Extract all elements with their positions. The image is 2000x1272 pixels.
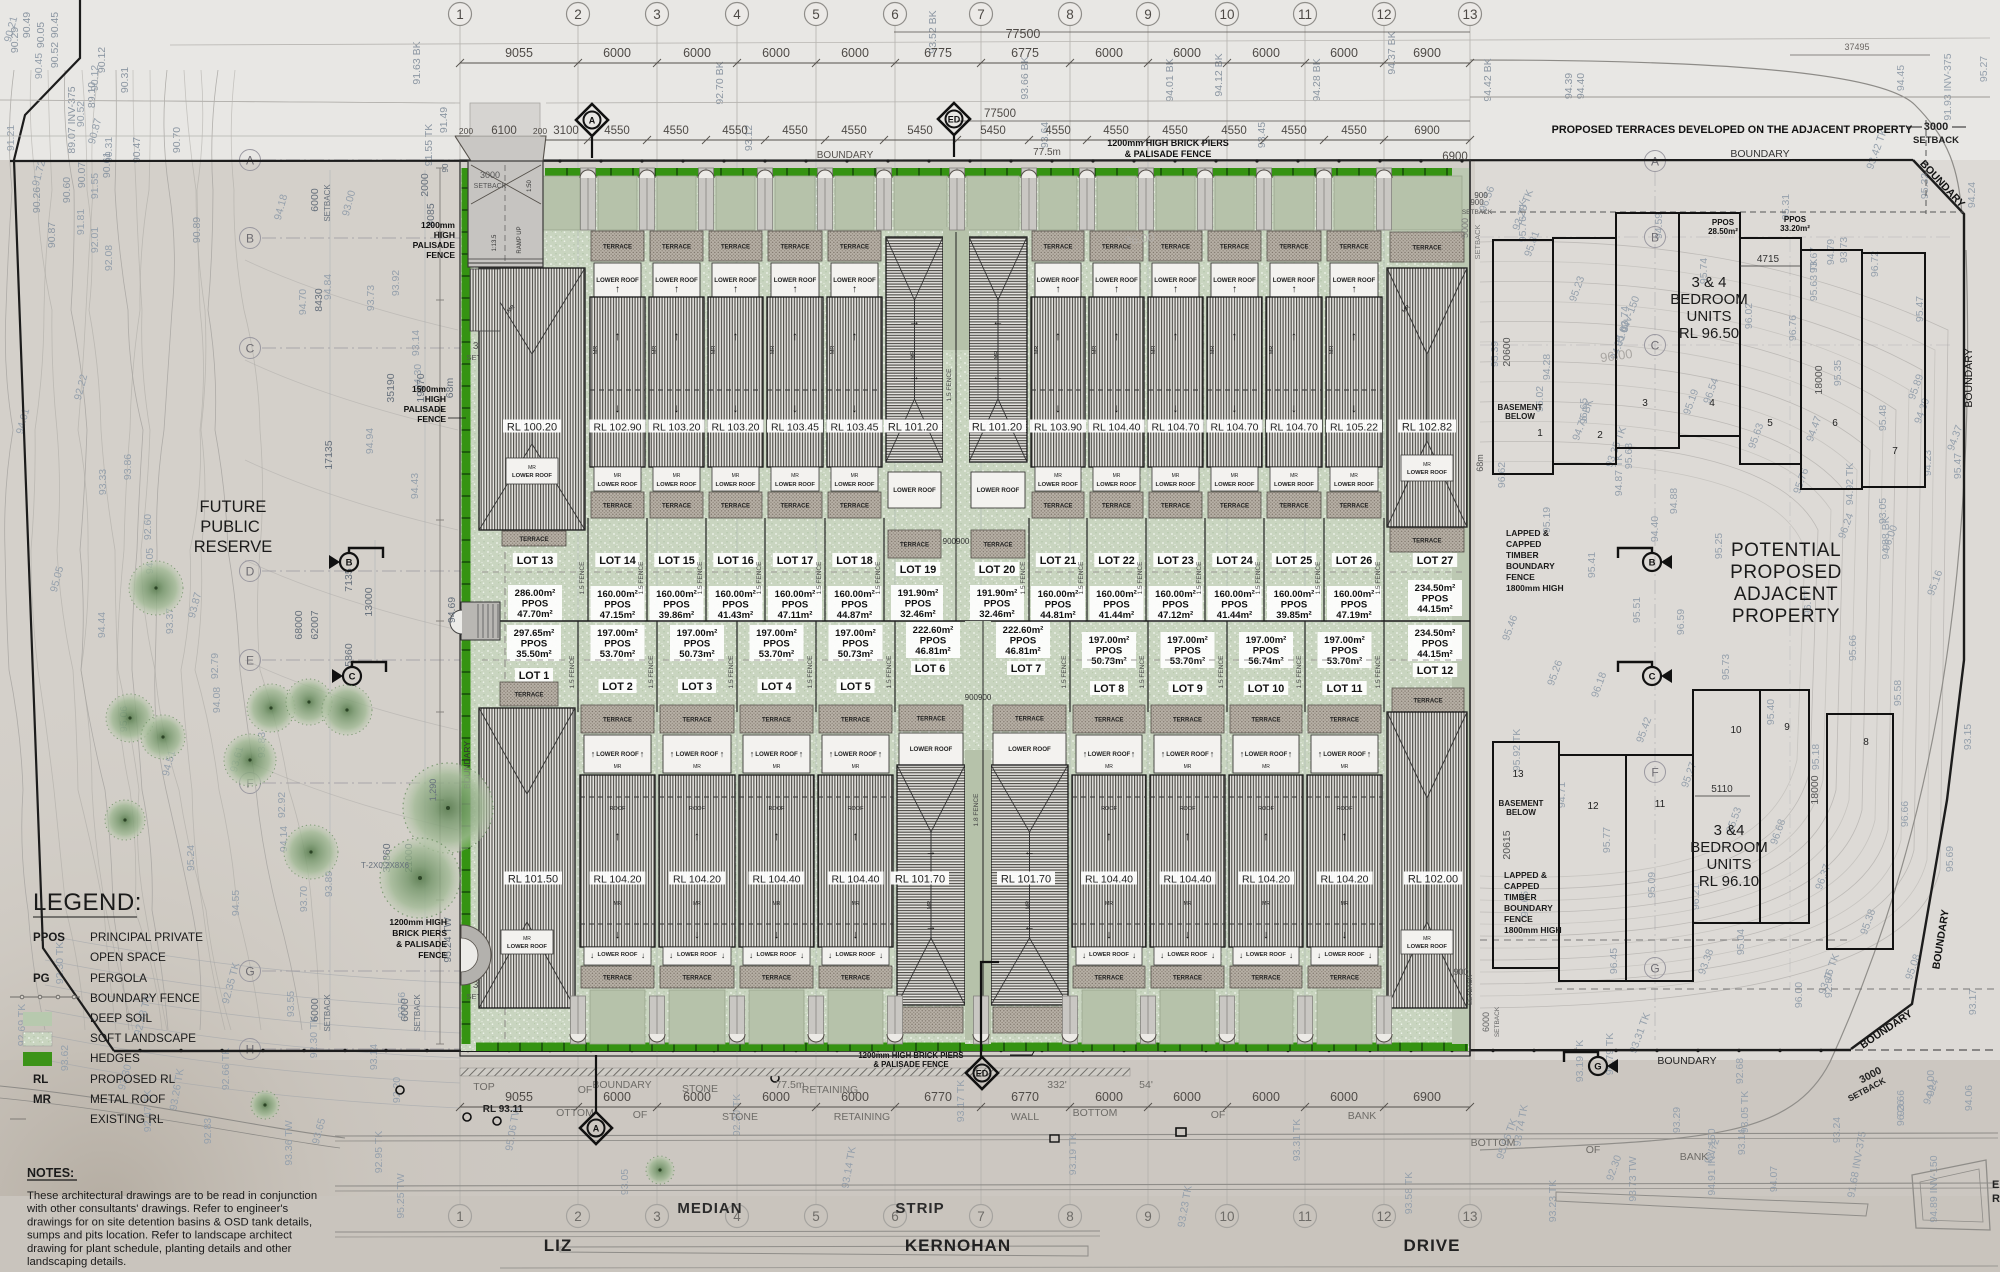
svg-text:1.5 FENCE: 1.5 FENCE [1061, 655, 1068, 689]
svg-text:MR: MR [791, 473, 799, 479]
svg-text:TIMBER: TIMBER [1506, 550, 1539, 560]
svg-text:↑: ↑ [670, 749, 675, 759]
svg-text:D: D [246, 565, 255, 579]
svg-text:MR: MR [614, 901, 622, 907]
svg-text:HEDGES: HEDGES [90, 1051, 140, 1065]
svg-text:↑: ↑ [799, 749, 804, 759]
svg-text:LOWER ROOF: LOWER ROOF [507, 944, 547, 950]
svg-text:TERRACE: TERRACE [721, 245, 750, 251]
svg-text:95.73: 95.73 [1720, 654, 1732, 680]
svg-text:94.28 BK: 94.28 BK [1311, 58, 1323, 101]
svg-text:BOUNDARY: BOUNDARY [1730, 148, 1789, 160]
svg-text:95.40: 95.40 [1765, 699, 1777, 725]
svg-text:TERRACE: TERRACE [762, 976, 791, 982]
svg-text:MR: MR [693, 901, 701, 907]
svg-text:91.49: 91.49 [438, 107, 450, 133]
svg-text:94.00: 94.00 [1925, 1070, 1937, 1096]
svg-text:6100: 6100 [491, 125, 517, 137]
svg-text:96.66: 96.66 [1899, 801, 1911, 827]
svg-text:1.5 FENCE: 1.5 FENCE [1218, 655, 1225, 689]
svg-text:90.49: 90.49 [21, 12, 33, 38]
svg-text:PPOS: PPOS [1253, 646, 1279, 657]
svg-text:160.00m²: 160.00m² [597, 589, 638, 600]
svg-text:TERRACE: TERRACE [603, 245, 632, 251]
svg-text:LEGEND:: LEGEND: [33, 889, 142, 916]
svg-text:LOWER ROOF: LOWER ROOF [598, 482, 638, 488]
svg-text:LOWER ROOF: LOWER ROOF [596, 277, 639, 284]
svg-text:94.23: 94.23 [1922, 450, 1934, 476]
svg-text:PPOS: PPOS [1422, 594, 1448, 605]
svg-text:LOT 8: LOT 8 [1094, 683, 1125, 695]
svg-text:RETAINING: RETAINING [802, 1084, 858, 1096]
svg-text:MR: MR [1054, 473, 1062, 479]
svg-text:LOWER ROOF: LOWER ROOF [1089, 952, 1129, 958]
svg-text:LOWER ROOF: LOWER ROOF [596, 751, 639, 758]
svg-text:33.20m²: 33.20m² [1780, 224, 1810, 233]
svg-text:↓: ↓ [1114, 401, 1120, 415]
svg-text:6000: 6000 [1252, 1090, 1280, 1104]
svg-text:MR: MR [852, 764, 860, 770]
svg-text:94.70: 94.70 [297, 289, 309, 315]
svg-text:LOT 23: LOT 23 [1157, 555, 1194, 567]
svg-text:↑: ↑ [640, 749, 645, 759]
svg-text:↑: ↑ [1352, 284, 1357, 295]
svg-text:↑: ↑ [792, 329, 798, 343]
svg-text:LOT 15: LOT 15 [658, 555, 695, 567]
svg-text:95.92 TK: 95.92 TK [1511, 729, 1523, 771]
svg-text:MR: MR [1092, 346, 1098, 355]
svg-text:7: 7 [977, 1209, 985, 1224]
svg-text:LOWER ROOF: LOWER ROOF [1245, 751, 1288, 758]
svg-text:LOWER ROOF: LOWER ROOF [1323, 751, 1366, 758]
svg-text:PALISADE: PALISADE [413, 240, 456, 250]
svg-text:6000: 6000 [1095, 1090, 1123, 1104]
svg-text:LOWER ROOF: LOWER ROOF [1246, 952, 1286, 958]
svg-text:↑: ↑ [694, 829, 700, 843]
svg-text:160.00m²: 160.00m² [1214, 589, 1255, 600]
svg-text:MR: MR [1423, 936, 1431, 942]
svg-text:MR: MR [927, 901, 933, 910]
svg-text:1.5 FENCE: 1.5 FENCE [1315, 561, 1322, 595]
svg-text:LOT 12: LOT 12 [1417, 665, 1454, 677]
svg-text:93.33: 93.33 [97, 469, 109, 495]
svg-text:↑: ↑ [793, 284, 798, 295]
svg-text:3: 3 [653, 1209, 661, 1224]
svg-text:LOWER ROOF: LOWER ROOF [1037, 277, 1080, 284]
svg-text:LOWER ROOF: LOWER ROOF [1325, 952, 1365, 958]
svg-text:EXISTING RL: EXISTING RL [90, 1112, 164, 1126]
svg-text:↑: ↑ [1055, 329, 1061, 343]
svg-text:↓: ↓ [590, 951, 594, 960]
svg-text:MR: MR [711, 346, 717, 355]
svg-text:LOT 17: LOT 17 [777, 555, 814, 567]
svg-text:TERRACE: TERRACE [1279, 245, 1308, 251]
svg-text:BEDROOM: BEDROOM [1690, 839, 1768, 856]
svg-text:↑: ↑ [1367, 749, 1372, 759]
svg-text:6000: 6000 [309, 998, 321, 1022]
svg-text:95.48: 95.48 [1877, 405, 1889, 431]
svg-text:94.69: 94.69 [446, 597, 458, 623]
svg-text:MR: MR [1290, 473, 1298, 479]
svg-text:SETBACK: SETBACK [323, 184, 332, 222]
svg-text:1.5 FENCE: 1.5 FENCE [697, 561, 704, 595]
svg-text:200: 200 [533, 126, 547, 136]
svg-text:RL 101.70: RL 101.70 [895, 874, 945, 886]
svg-text:92.70 BK: 92.70 BK [714, 61, 726, 104]
svg-text:BELOW: BELOW [1506, 808, 1536, 817]
svg-text:TERRACE: TERRACE [1251, 718, 1280, 724]
svg-text:G: G [245, 965, 254, 979]
svg-text:OPEN SPACE: OPEN SPACE [90, 950, 166, 964]
svg-text:PPOS: PPOS [1096, 646, 1122, 657]
svg-text:LOWER ROOF: LOWER ROOF [1095, 277, 1138, 284]
svg-text:94.01 BK: 94.01 BK [1164, 58, 1176, 101]
svg-text:LOWER ROOF: LOWER ROOF [714, 277, 757, 284]
svg-text:A: A [589, 116, 596, 126]
svg-text:METAL ROOF: METAL ROOF [90, 1092, 165, 1106]
svg-text:900900: 900900 [965, 693, 992, 702]
svg-text:LOT 21: LOT 21 [1040, 555, 1077, 567]
svg-text:PPOS: PPOS [521, 639, 547, 650]
svg-text:91.93 INV-375: 91.93 INV-375 [1942, 53, 1954, 120]
svg-text:197.00m²: 197.00m² [1324, 635, 1365, 646]
svg-text:93.55: 93.55 [285, 991, 297, 1017]
svg-text:→: → [909, 316, 920, 328]
svg-text:95.41: 95.41 [1586, 552, 1598, 578]
svg-text:MR: MR [1231, 473, 1239, 479]
svg-text:LOWER ROOF: LOWER ROOF [512, 473, 552, 479]
svg-text:RAMP UP: RAMP UP [517, 226, 523, 253]
svg-text:1.5 FENCE: 1.5 FENCE [1078, 561, 1085, 595]
svg-text:SETBACK: SETBACK [1462, 209, 1493, 216]
svg-text:LOWER ROOF: LOWER ROOF [774, 277, 817, 284]
svg-text:LOT 13: LOT 13 [517, 555, 554, 567]
svg-text:MR: MR [770, 346, 776, 355]
svg-text:62007: 62007 [309, 610, 321, 639]
svg-text:93.14: 93.14 [410, 330, 422, 356]
svg-text:9: 9 [1144, 7, 1152, 22]
svg-text:1.5 FENCE: 1.5 FENCE [756, 561, 763, 595]
svg-text:68m: 68m [1475, 454, 1485, 472]
svg-text:41.44m²: 41.44m² [1099, 610, 1134, 621]
svg-text:TERRACE: TERRACE [1161, 504, 1190, 510]
svg-text:95.25 TW: 95.25 TW [395, 1173, 407, 1218]
svg-text:MR: MR [830, 346, 836, 355]
svg-text:53.70m²: 53.70m² [1327, 656, 1362, 667]
svg-text:↑: ↑ [829, 749, 834, 759]
svg-text:RL 102.82: RL 102.82 [1402, 422, 1452, 434]
svg-text:160.00m²: 160.00m² [1155, 589, 1196, 600]
svg-text:PPOS: PPOS [522, 599, 548, 610]
svg-text:4550: 4550 [722, 125, 748, 137]
svg-text:↑: ↑ [878, 749, 883, 759]
svg-text:92.08: 92.08 [103, 245, 115, 271]
svg-text:RL 105.22: RL 105.22 [1330, 422, 1378, 434]
svg-text:TERRACE: TERRACE [1043, 245, 1072, 251]
svg-text:ED: ED [976, 1069, 989, 1079]
svg-text:↑: ↑ [733, 284, 738, 295]
svg-text:6000: 6000 [762, 1090, 790, 1104]
svg-text:MR: MR [1034, 346, 1040, 355]
svg-text:LOWER ROOF: LOWER ROOF [1273, 277, 1316, 284]
svg-text:with other consultants' drawin: with other consultants' drawings. Refer … [26, 1203, 288, 1215]
svg-text:8: 8 [1066, 1209, 1074, 1224]
svg-text:LOT 11: LOT 11 [1326, 683, 1362, 695]
svg-text:↑: ↑ [1173, 329, 1179, 343]
svg-text:↑: ↑ [1240, 749, 1245, 759]
svg-text:RL 104.20: RL 104.20 [593, 874, 641, 886]
svg-text:LOWER ROOF: LOWER ROOF [1097, 482, 1137, 488]
svg-text:TERRACE: TERRACE [1094, 976, 1123, 982]
svg-text:2: 2 [574, 7, 582, 22]
svg-text:STONE: STONE [682, 1083, 718, 1095]
svg-text:RL 104.70: RL 104.70 [1210, 422, 1258, 434]
svg-text:TERRACE: TERRACE [841, 718, 870, 724]
svg-text:TERRACE: TERRACE [1339, 504, 1368, 510]
svg-text:LOT 26: LOT 26 [1336, 555, 1373, 567]
svg-text:↑: ↑ [1318, 749, 1323, 759]
svg-text:↑: ↑ [852, 329, 858, 343]
svg-text:←: ← [1024, 846, 1035, 858]
svg-text:LAPPED &: LAPPED & [1506, 528, 1549, 538]
svg-text:89.10: 89.10 [86, 82, 98, 108]
svg-text:4550: 4550 [841, 125, 867, 137]
svg-text:17135: 17135 [323, 440, 335, 469]
svg-text:6: 6 [1832, 418, 1838, 429]
svg-text:93.58 TK: 93.58 TK [1403, 1172, 1415, 1214]
svg-text:95.09: 95.09 [1646, 872, 1658, 898]
svg-text:MR: MR [1269, 346, 1275, 355]
svg-text:44.87m²: 44.87m² [837, 610, 872, 621]
svg-text:TERRACE: TERRACE [1015, 717, 1044, 723]
svg-text:PROPERTY: PROPERTY [1732, 606, 1840, 627]
svg-text:6000: 6000 [309, 188, 321, 212]
svg-text:↑: ↑ [674, 329, 680, 343]
svg-text:MR: MR [1151, 346, 1157, 355]
svg-text:↑: ↑ [852, 284, 857, 295]
svg-text:LOT 19: LOT 19 [900, 564, 937, 576]
svg-text:RESERVE: RESERVE [194, 538, 273, 556]
svg-text:LOWER ROOF: LOWER ROOF [1156, 482, 1196, 488]
svg-text:50.73m²: 50.73m² [1091, 656, 1126, 667]
svg-text:↓: ↓ [1263, 929, 1269, 941]
svg-text:160.00m²: 160.00m² [834, 589, 875, 600]
svg-text:& PALISADE FENCE: & PALISADE FENCE [1125, 149, 1212, 159]
svg-text:4550: 4550 [1221, 125, 1247, 137]
svg-text:92.68: 92.68 [1734, 1058, 1746, 1084]
svg-text:LOWER ROOF: LOWER ROOF [655, 277, 698, 284]
svg-text:OF: OF [633, 1109, 648, 1121]
svg-text:T‑2X0.2X8X6: T‑2X0.2X8X6 [361, 861, 410, 870]
svg-text:↓: ↓ [1106, 929, 1112, 941]
svg-text:MR: MR [1184, 901, 1192, 907]
svg-text:SETBACK: SETBACK [474, 183, 507, 190]
svg-text:KERNOHAN: KERNOHAN [905, 1236, 1011, 1255]
svg-text:77.5m: 77.5m [1033, 147, 1061, 158]
svg-text:ROOF: ROOF [1180, 806, 1197, 812]
svg-text:↓: ↓ [800, 951, 804, 960]
svg-text:OF: OF [1211, 1109, 1226, 1121]
svg-text:↓: ↓ [853, 929, 859, 941]
svg-text:LIZ: LIZ [544, 1236, 573, 1255]
svg-text:46.81m²: 46.81m² [1005, 646, 1040, 657]
svg-text:93.19 TK: 93.19 TK [1574, 1040, 1586, 1082]
svg-text:PPOS: PPOS [1162, 600, 1188, 611]
svg-text:↑: ↑ [1131, 749, 1136, 759]
svg-text:MR: MR [1423, 462, 1431, 468]
svg-text:LOWER ROOF: LOWER ROOF [836, 952, 876, 958]
svg-text:LOT 3: LOT 3 [682, 681, 713, 693]
svg-text:11: 11 [1298, 1209, 1312, 1224]
svg-text:160.00m²: 160.00m² [1334, 589, 1375, 600]
svg-text:MR: MR [593, 346, 599, 355]
svg-text:RL 101.50: RL 101.50 [508, 874, 558, 886]
svg-text:PPOS: PPOS [1331, 646, 1357, 657]
svg-text:↓: ↓ [641, 951, 645, 960]
svg-text:95.04: 95.04 [1735, 929, 1747, 955]
svg-text:96.45: 96.45 [1608, 948, 1620, 974]
svg-text:RO: RO [1992, 1193, 2000, 1205]
svg-text:ROOF: ROOF [1258, 806, 1275, 812]
svg-text:↑: ↑ [1173, 284, 1178, 295]
svg-text:6000: 6000 [1095, 46, 1123, 60]
svg-text:20615: 20615 [1501, 830, 1513, 859]
svg-text:94.39: 94.39 [1563, 73, 1575, 99]
svg-text:TERRACE: TERRACE [519, 537, 548, 543]
svg-text:92.79: 92.79 [209, 653, 221, 679]
svg-text:6000: 6000 [399, 998, 411, 1022]
svg-text:PPOS: PPOS [604, 639, 630, 650]
svg-text:90: 90 [441, 163, 450, 172]
svg-text:LOWER ROOF: LOWER ROOF [677, 952, 717, 958]
svg-text:LOT 2: LOT 2 [602, 681, 633, 693]
svg-text:PPOS: PPOS [1422, 639, 1448, 650]
svg-text:11: 11 [1298, 7, 1312, 22]
svg-text:RL 93.11: RL 93.11 [483, 1104, 524, 1115]
svg-text:3000: 3000 [480, 170, 500, 180]
svg-text:UNITS: UNITS [1707, 856, 1752, 873]
svg-text:28.50m²: 28.50m² [1708, 227, 1738, 236]
svg-text:RL 104.20: RL 104.20 [1242, 874, 1290, 886]
svg-text:191.90m²: 191.90m² [898, 588, 939, 599]
svg-text:TOP: TOP [473, 1081, 494, 1093]
svg-text:90.29: 90.29 [9, 27, 21, 53]
svg-text:RETAINING: RETAINING [834, 1111, 890, 1123]
svg-text:↓: ↓ [1291, 401, 1297, 415]
svg-text:FENCE: FENCE [418, 950, 447, 960]
svg-text:1.5 FENCE: 1.5 FENCE [569, 655, 576, 689]
svg-text:5: 5 [812, 1209, 820, 1224]
svg-text:4550: 4550 [1103, 125, 1129, 137]
svg-text:TERRACE: TERRACE [721, 504, 750, 510]
svg-text:13000: 13000 [363, 587, 375, 616]
svg-text:TIMBER: TIMBER [1504, 892, 1537, 902]
svg-text:↑: ↑ [1083, 749, 1088, 759]
svg-text:1500mm: 1500mm [412, 384, 446, 394]
svg-text:BOUNDARY: BOUNDARY [592, 1079, 651, 1091]
svg-text:↓: ↓ [1239, 951, 1243, 960]
svg-text:↑: ↑ [1292, 284, 1297, 295]
svg-text:↓: ↓ [1342, 929, 1348, 941]
svg-text:RL 104.40: RL 104.40 [831, 874, 879, 886]
svg-text:LOWER ROOF: LOWER ROOF [657, 482, 697, 488]
svg-text:MR: MR [773, 901, 781, 907]
svg-text:DRIVE: DRIVE [1404, 1236, 1461, 1255]
svg-text:MR: MR [1350, 473, 1358, 479]
svg-text:35190: 35190 [385, 373, 397, 402]
svg-text:LOT 14: LOT 14 [599, 555, 636, 567]
svg-text:ROOF: ROOF [769, 806, 786, 812]
svg-text:2: 2 [1597, 430, 1603, 441]
svg-text:93.70: 93.70 [298, 886, 310, 912]
svg-text:3 & 4: 3 & 4 [1691, 274, 1726, 291]
svg-text:8430: 8430 [313, 288, 325, 312]
svg-text:TERRACE: TERRACE [900, 543, 929, 549]
svg-text:LOWER ROOF: LOWER ROOF [1154, 277, 1197, 284]
svg-text:A: A [593, 1124, 600, 1134]
svg-text:LOWER ROOF: LOWER ROOF [1407, 944, 1447, 950]
svg-text:6000: 6000 [762, 46, 790, 60]
svg-text:↑: ↑ [1288, 749, 1293, 759]
svg-text:18000: 18000 [1813, 365, 1825, 394]
svg-text:12: 12 [1376, 1209, 1391, 1224]
svg-text:13: 13 [1462, 1209, 1477, 1224]
svg-text:234.50m²: 234.50m² [1415, 628, 1456, 639]
svg-text:5000: 5000 [1460, 218, 1470, 238]
svg-text:160.00m²: 160.00m² [1274, 589, 1315, 600]
svg-text:90.60: 90.60 [61, 177, 73, 203]
svg-text:C: C [1649, 672, 1656, 683]
svg-text:LOWER ROOF: LOWER ROOF [1008, 746, 1051, 753]
svg-text:LOWER ROOF: LOWER ROOF [1333, 277, 1376, 284]
svg-text:BANK: BANK [1680, 1151, 1709, 1163]
svg-text:47.70m²: 47.70m² [517, 609, 552, 620]
svg-text:92.83: 92.83 [202, 1118, 214, 1144]
svg-text:1: 1 [456, 7, 464, 22]
svg-text:PPOS: PPOS [1221, 600, 1247, 611]
svg-text:PPOS: PPOS [1045, 600, 1071, 611]
svg-text:OF: OF [578, 1084, 593, 1096]
svg-text:LOWER ROOF: LOWER ROOF [1213, 277, 1256, 284]
svg-text:160.00m²: 160.00m² [775, 589, 816, 600]
svg-text:1.8 FENCE: 1.8 FENCE [973, 793, 980, 827]
svg-text:POTENTIAL: POTENTIAL [1731, 540, 1841, 561]
svg-text:1.5 FENCE: 1.5 FENCE [1139, 655, 1146, 689]
svg-text:90.12: 90.12 [96, 47, 108, 73]
svg-text:PPOS: PPOS [984, 599, 1010, 610]
svg-text:1800mm HIGH: 1800mm HIGH [1504, 925, 1562, 935]
svg-text:↑: ↑ [1232, 329, 1238, 343]
svg-text:TERRACE: TERRACE [780, 504, 809, 510]
svg-text:197.00m²: 197.00m² [756, 628, 797, 639]
svg-text:4550: 4550 [1341, 125, 1367, 137]
svg-text:6000: 6000 [841, 46, 869, 60]
svg-text:RL 104.40: RL 104.40 [1163, 874, 1211, 886]
svg-text:10: 10 [1219, 7, 1234, 22]
svg-text:94.24: 94.24 [1966, 182, 1978, 208]
svg-text:PROPOSED RL: PROPOSED RL [90, 1072, 176, 1086]
svg-text:94.92 TK: 94.92 TK [1844, 463, 1856, 505]
svg-text:BRICK PIERS: BRICK PIERS [392, 928, 447, 938]
svg-text:↓: ↓ [1211, 951, 1215, 960]
svg-text:50.73m²: 50.73m² [679, 649, 714, 660]
svg-text:LOWER ROOF: LOWER ROOF [834, 751, 877, 758]
svg-text:1.5 FENCE: 1.5 FENCE [1375, 561, 1382, 595]
svg-text:↑: ↑ [1291, 329, 1297, 343]
svg-text:E: E [246, 654, 254, 668]
svg-text:77500: 77500 [1006, 27, 1041, 41]
svg-text:93.19 TK: 93.19 TK [1067, 1133, 1079, 1175]
